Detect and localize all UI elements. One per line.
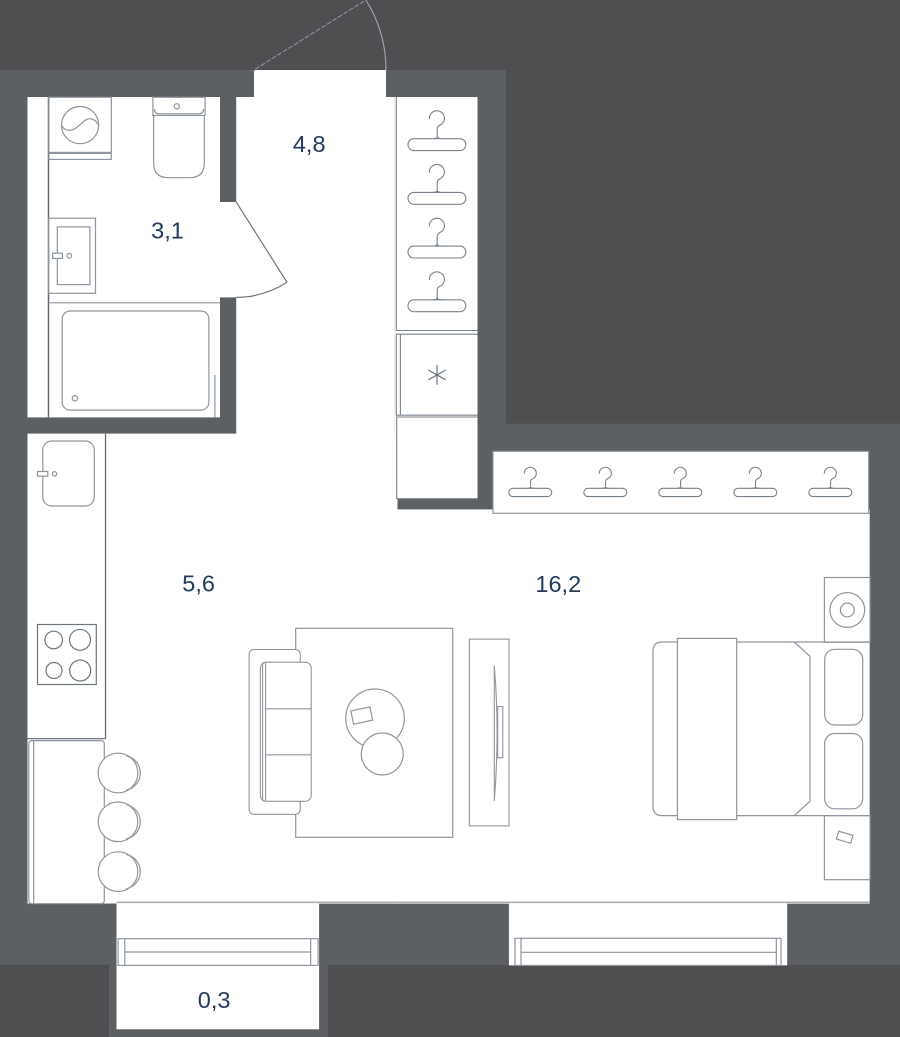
svg-text:5,6: 5,6 xyxy=(182,571,215,597)
svg-text:16,2: 16,2 xyxy=(535,571,581,597)
svg-text:0,3: 0,3 xyxy=(198,987,231,1013)
svg-text:4,8: 4,8 xyxy=(293,131,326,157)
svg-text:3,1: 3,1 xyxy=(151,218,184,244)
